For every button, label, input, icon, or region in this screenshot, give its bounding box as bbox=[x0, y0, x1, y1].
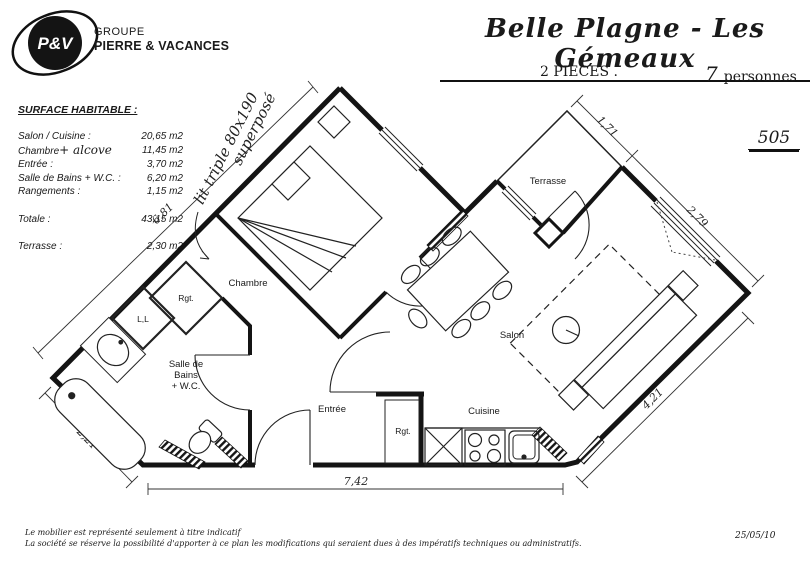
chambre-window bbox=[379, 127, 423, 171]
kitchen-fridge-cross bbox=[425, 428, 462, 465]
label-terrasse: Terrasse bbox=[530, 176, 566, 187]
hatched-walls bbox=[159, 210, 604, 469]
nightstand bbox=[318, 106, 350, 138]
toilet bbox=[184, 419, 223, 459]
salon-arch-door bbox=[330, 332, 390, 392]
label-chambre: Chambre bbox=[228, 278, 267, 289]
disclaimer-line2: La société se réserve la possibilité d'a… bbox=[25, 539, 715, 550]
disclaimer: Le mobilier est représenté seulement à t… bbox=[25, 528, 715, 549]
label-entree: Entrée bbox=[318, 404, 346, 415]
floor-plan-document: P&V GROUPE PIERRE & VACANCES Belle Plagn… bbox=[0, 0, 812, 575]
label-cuisine: Cuisine bbox=[468, 406, 500, 417]
stove bbox=[465, 430, 505, 465]
dimension-ne-terrace: 1,71 bbox=[594, 113, 621, 140]
bathtub bbox=[48, 372, 153, 477]
dimension-south: 7,42 bbox=[344, 475, 369, 488]
label-salon: Salon bbox=[500, 330, 524, 341]
bathroom-sink bbox=[80, 317, 145, 382]
entrance-door bbox=[255, 410, 310, 465]
label-sdb-3: + W.C. bbox=[172, 381, 201, 392]
bathroom-door bbox=[195, 355, 250, 410]
dimension-ne-salon: 2,79 bbox=[683, 203, 710, 230]
label-sdb-2: Bains bbox=[174, 370, 198, 381]
label-sdb-1: Salle de bbox=[169, 359, 203, 370]
side-table bbox=[553, 317, 580, 344]
label-rgt-bath: Rgt. bbox=[178, 293, 194, 303]
plan-date: 25/05/10 bbox=[735, 531, 775, 541]
label-rgt-entree: Rgt. bbox=[395, 426, 411, 436]
furniture bbox=[48, 106, 712, 476]
disclaimer-line1: Le mobilier est représenté seulement à t… bbox=[25, 528, 715, 539]
floor-plan: 6,81 2,21 7,42 1,71 2,79 4,21 bbox=[0, 0, 812, 575]
label-lave-linge: L,L bbox=[137, 314, 149, 324]
terrace-door-window bbox=[502, 186, 536, 220]
